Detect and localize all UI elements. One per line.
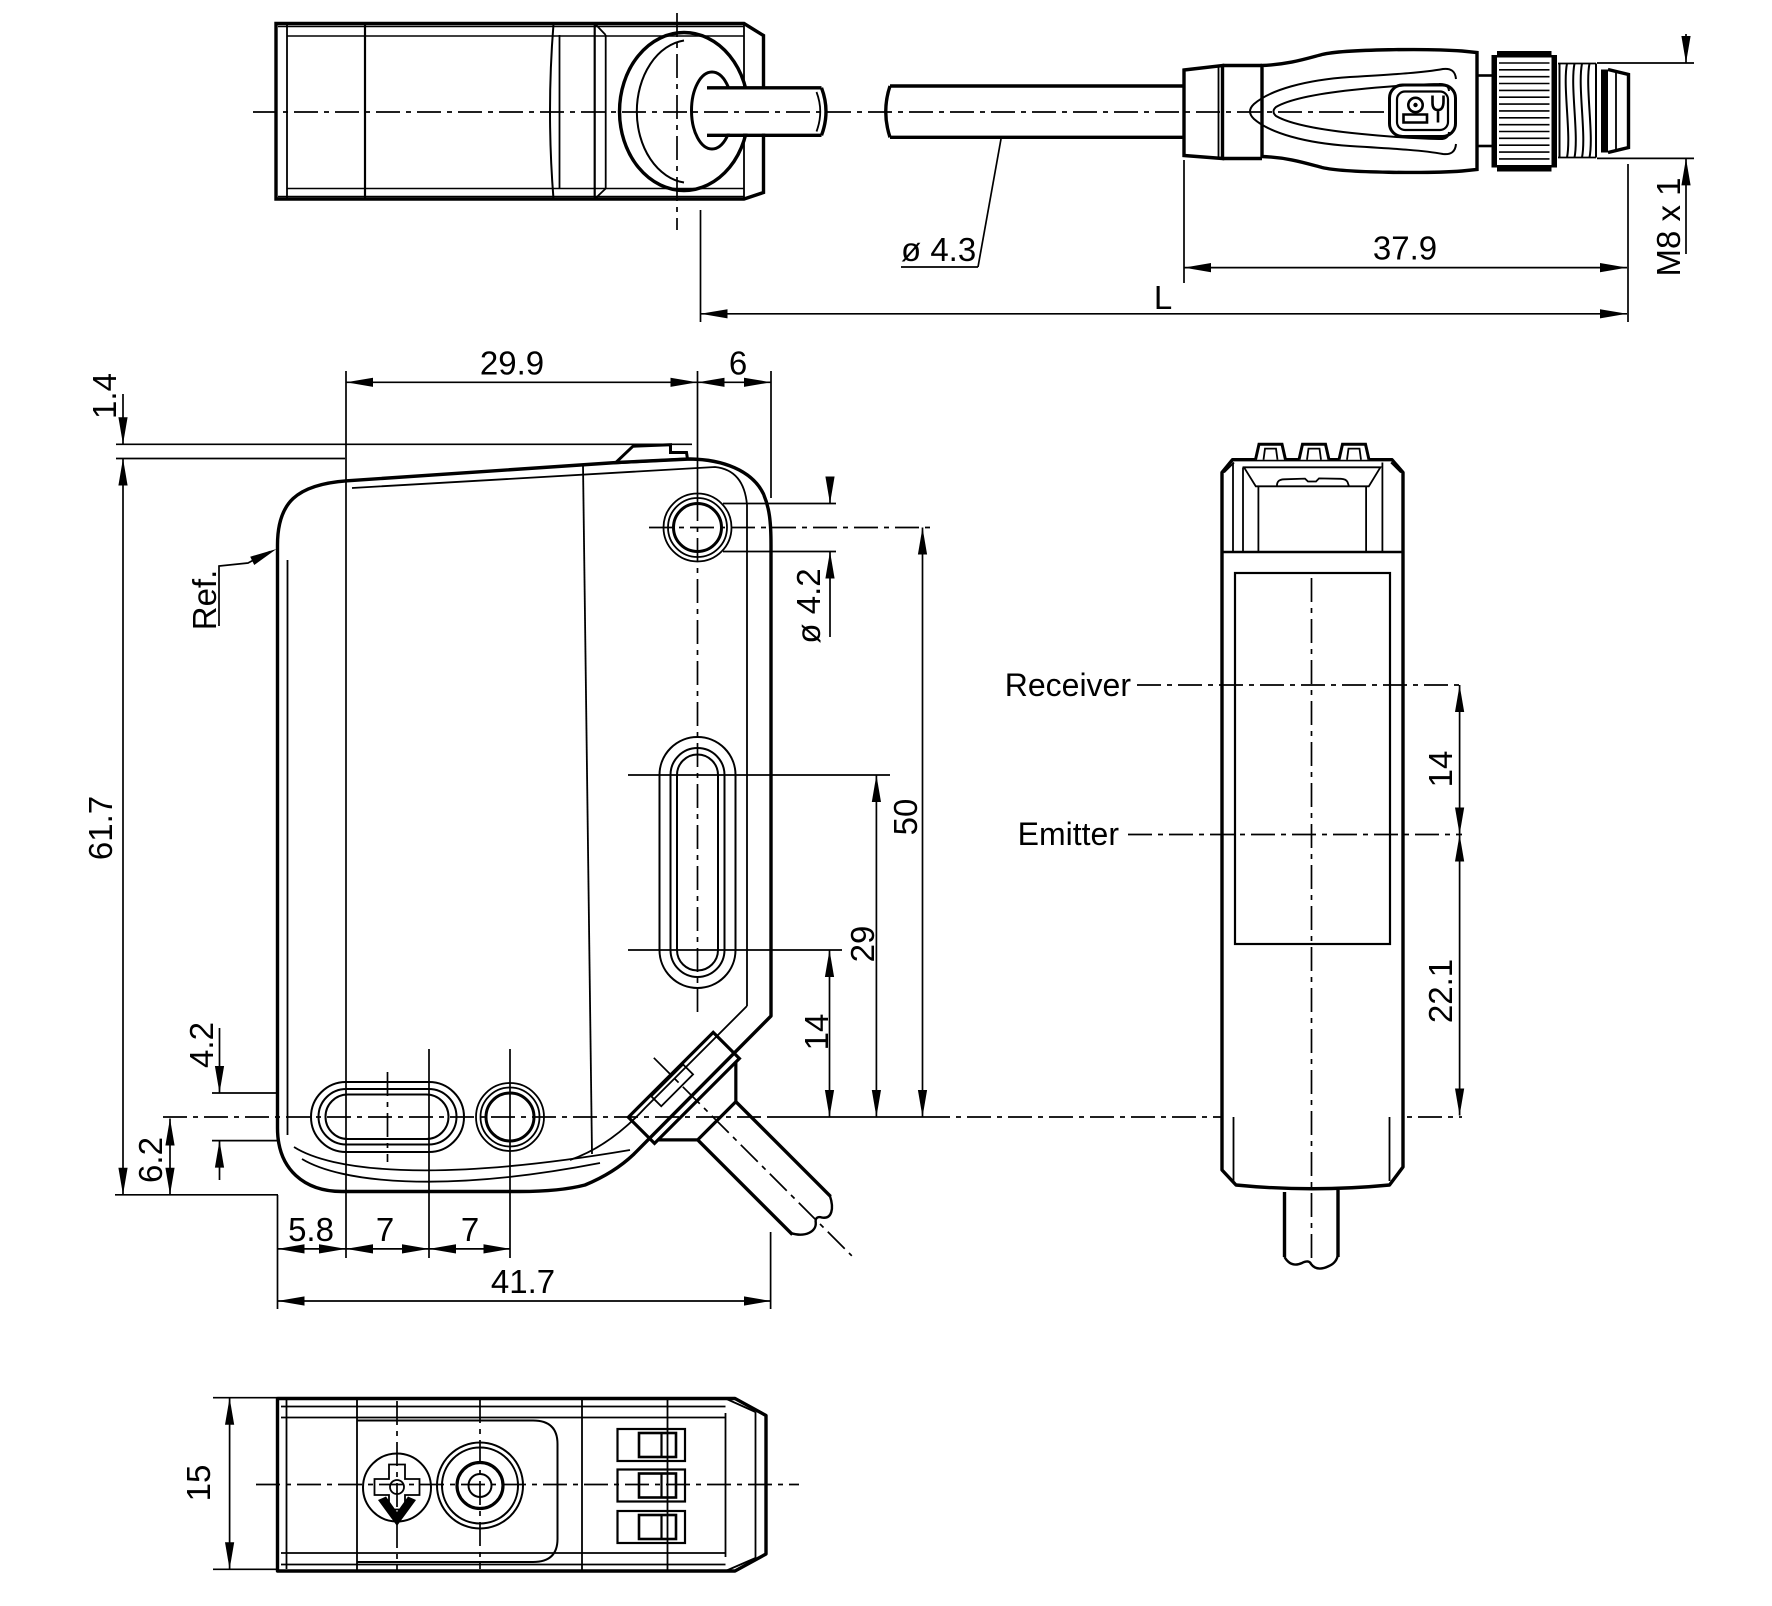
svg-text:ø 4.3: ø 4.3: [901, 231, 976, 268]
svg-text:7: 7: [376, 1211, 394, 1248]
svg-text:Receiver: Receiver: [1005, 667, 1132, 703]
svg-text:5.8: 5.8: [288, 1211, 334, 1248]
svg-text:6.2: 6.2: [132, 1137, 169, 1183]
svg-text:14: 14: [798, 1014, 835, 1051]
svg-text:4.2: 4.2: [183, 1022, 220, 1068]
svg-text:7: 7: [461, 1211, 479, 1248]
svg-text:L: L: [1154, 279, 1172, 316]
svg-text:14: 14: [1422, 751, 1459, 788]
svg-text:15: 15: [180, 1465, 217, 1502]
svg-text:41.7: 41.7: [491, 1263, 555, 1300]
svg-text:1.4: 1.4: [86, 373, 123, 419]
svg-text:22.1: 22.1: [1422, 959, 1459, 1023]
svg-text:29.9: 29.9: [480, 345, 544, 382]
svg-text:M8 x 1: M8 x 1: [1650, 177, 1687, 276]
svg-text:37.9: 37.9: [1373, 230, 1437, 267]
svg-text:Ref.: Ref.: [186, 570, 223, 631]
svg-text:6: 6: [729, 345, 747, 382]
svg-text:61.7: 61.7: [82, 796, 119, 860]
svg-text:Emitter: Emitter: [1018, 816, 1120, 852]
svg-text:29: 29: [844, 926, 881, 963]
svg-text:50: 50: [887, 799, 924, 836]
svg-text:ø 4.2: ø 4.2: [790, 568, 827, 643]
